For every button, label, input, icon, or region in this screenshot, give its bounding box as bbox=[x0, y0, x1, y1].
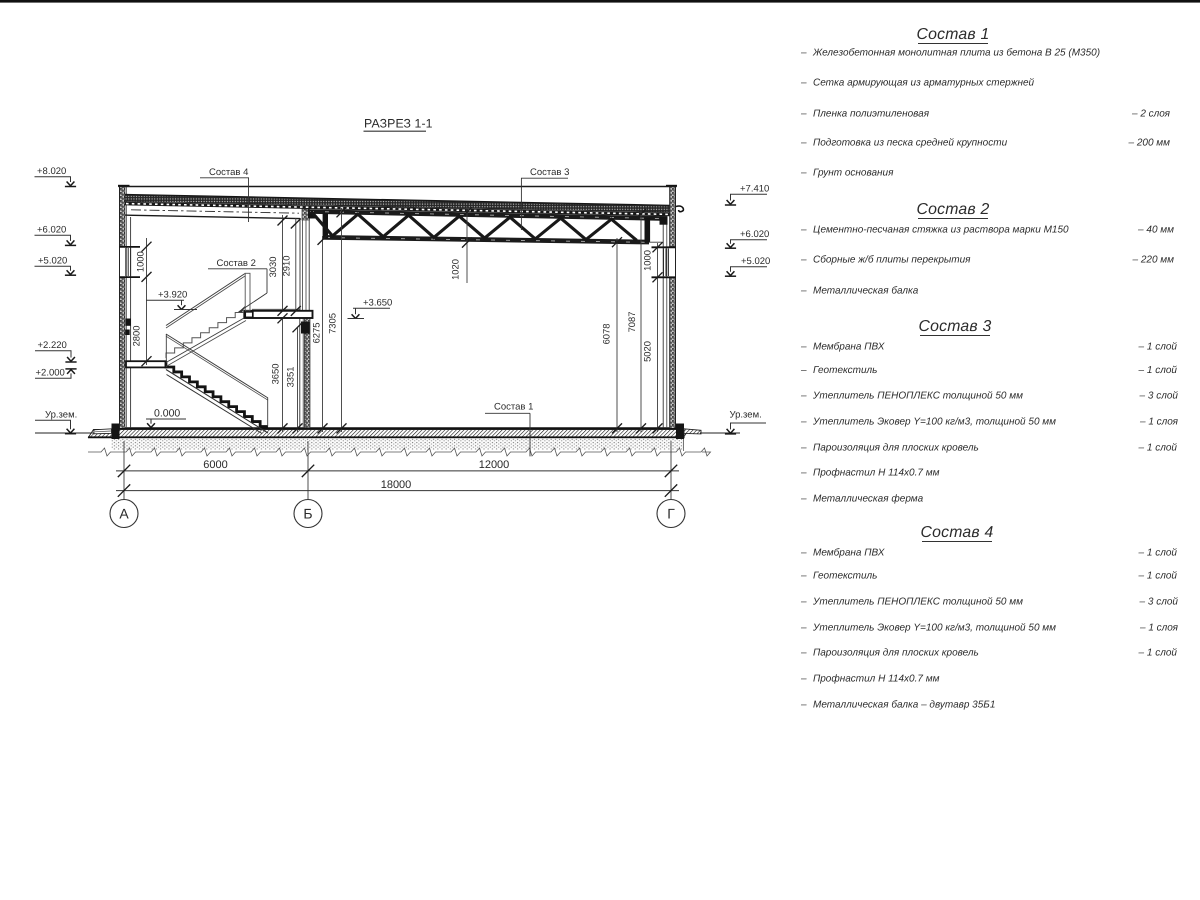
svg-text:Профнастил Н 114х0.7 мм: Профнастил Н 114х0.7 мм bbox=[813, 674, 940, 685]
svg-text:Ур.зем.: Ур.зем. bbox=[45, 410, 77, 421]
svg-text:+7.410: +7.410 bbox=[740, 184, 769, 195]
svg-text:1000: 1000 bbox=[642, 250, 653, 271]
svg-text:РАЗРЕЗ 1-1: РАЗРЕЗ 1-1 bbox=[364, 117, 433, 131]
svg-text:–: – bbox=[800, 391, 807, 402]
svg-text:Состав 3: Состав 3 bbox=[530, 167, 569, 178]
svg-text:1020: 1020 bbox=[450, 259, 461, 280]
svg-text:– 3 слой: – 3 слой bbox=[1139, 597, 1179, 608]
svg-text:–: – bbox=[800, 468, 807, 479]
svg-text:+6.020: +6.020 bbox=[37, 225, 66, 236]
svg-text:–: – bbox=[800, 648, 807, 659]
svg-text:2910: 2910 bbox=[280, 256, 291, 277]
svg-text:+5.020: +5.020 bbox=[38, 256, 67, 267]
svg-text:– 1 слоя: – 1 слоя bbox=[1139, 417, 1179, 428]
svg-text:+5.020: +5.020 bbox=[741, 256, 770, 267]
svg-text:+2.000: +2.000 bbox=[36, 368, 65, 379]
svg-text:Утеплитель ПЕНОПЛЕКС толщиной: Утеплитель ПЕНОПЛЕКС толщиной 50 мм bbox=[812, 597, 1023, 608]
svg-text:А: А bbox=[119, 505, 129, 521]
svg-text:3650: 3650 bbox=[270, 364, 281, 385]
svg-text:Утеплитель ПЕНОПЛЕКС толщиной: Утеплитель ПЕНОПЛЕКС толщиной 50 мм bbox=[812, 391, 1023, 402]
svg-text:Мембрана ПВХ: Мембрана ПВХ bbox=[813, 342, 885, 353]
svg-text:Профнастил Н 114х0.7 мм: Профнастил Н 114х0.7 мм bbox=[813, 468, 940, 479]
svg-text:–: – bbox=[800, 365, 807, 376]
svg-text:– 200 мм: – 200 мм bbox=[1127, 138, 1170, 149]
svg-text:Подготовка из песка средней кр: Подготовка из песка средней крупности bbox=[813, 138, 1008, 149]
svg-text:Сетка армирующая из арматурных: Сетка армирующая из арматурных стержней bbox=[813, 78, 1035, 89]
svg-text:12000: 12000 bbox=[479, 459, 510, 471]
svg-text:–: – bbox=[800, 548, 807, 559]
svg-text:Состав 4: Состав 4 bbox=[921, 524, 994, 541]
svg-text:0.000: 0.000 bbox=[154, 408, 180, 420]
svg-text:Состав 1: Состав 1 bbox=[917, 26, 990, 43]
svg-text:+3.650: +3.650 bbox=[363, 298, 392, 309]
svg-text:–: – bbox=[800, 255, 807, 266]
svg-text:Состав 4: Состав 4 bbox=[209, 167, 248, 178]
svg-text:7087: 7087 bbox=[626, 312, 637, 333]
svg-text:Геотекстиль: Геотекстиль bbox=[813, 571, 877, 582]
svg-text:–: – bbox=[800, 597, 807, 608]
svg-text:+3.920: +3.920 bbox=[158, 290, 187, 301]
svg-text:–: – bbox=[800, 417, 807, 428]
svg-text:– 220 мм: – 220 мм bbox=[1131, 255, 1174, 266]
svg-text:+8.020: +8.020 bbox=[37, 166, 66, 177]
svg-text:6000: 6000 bbox=[203, 459, 227, 471]
svg-text:Мембрана ПВХ: Мембрана ПВХ bbox=[813, 548, 885, 559]
svg-text:– 1 слой: – 1 слой bbox=[1138, 548, 1178, 559]
svg-text:5020: 5020 bbox=[642, 341, 653, 362]
svg-text:Утеплитель Эковер Y=100 кг/м3,: Утеплитель Эковер Y=100 кг/м3, толщиной … bbox=[812, 623, 1056, 634]
svg-text:Утеплитель Эковер Y=100 кг/м3,: Утеплитель Эковер Y=100 кг/м3, толщиной … bbox=[812, 417, 1056, 428]
svg-text:+6.020: +6.020 bbox=[740, 229, 769, 240]
svg-text:– 1 слоя: – 1 слоя bbox=[1139, 623, 1179, 634]
svg-text:Состав 1: Состав 1 bbox=[494, 402, 533, 413]
svg-text:– 1 слой: – 1 слой bbox=[1138, 571, 1178, 582]
svg-text:Состав 3: Состав 3 bbox=[919, 318, 992, 335]
svg-text:Пленка полиэтиленовая: Пленка полиэтиленовая bbox=[813, 109, 930, 120]
svg-text:18000: 18000 bbox=[381, 479, 412, 491]
svg-text:– 1 слой: – 1 слой bbox=[1138, 443, 1178, 454]
svg-text:–: – bbox=[800, 674, 807, 685]
svg-text:–: – bbox=[800, 342, 807, 353]
svg-text:–: – bbox=[800, 700, 807, 711]
svg-text:–: – bbox=[800, 494, 807, 505]
svg-text:Ур.зем.: Ур.зем. bbox=[730, 410, 762, 421]
svg-text:2800: 2800 bbox=[131, 326, 142, 347]
svg-text:7305: 7305 bbox=[327, 313, 338, 334]
svg-text:–: – bbox=[800, 623, 807, 634]
svg-text:Состав 2: Состав 2 bbox=[217, 258, 256, 269]
svg-text:Цементно-песчаная стяжка из ра: Цементно-песчаная стяжка из раствора мар… bbox=[813, 225, 1069, 236]
svg-text:–: – bbox=[800, 138, 807, 149]
svg-text:6078: 6078 bbox=[601, 324, 612, 345]
svg-text:– 1 слой: – 1 слой bbox=[1138, 342, 1178, 353]
svg-text:–: – bbox=[800, 109, 807, 120]
svg-text:Г: Г bbox=[667, 505, 675, 521]
svg-text:1000: 1000 bbox=[135, 251, 146, 272]
svg-text:3030: 3030 bbox=[267, 257, 278, 278]
svg-text:Металлическая балка – двутавр: Металлическая балка – двутавр 35Б1 bbox=[813, 700, 995, 711]
svg-text:Геотекстиль: Геотекстиль bbox=[813, 365, 877, 376]
svg-text:–: – bbox=[800, 571, 807, 582]
svg-text:–: – bbox=[800, 286, 807, 297]
svg-text:– 40 мм: – 40 мм bbox=[1137, 225, 1174, 236]
svg-text:– 1 слой: – 1 слой bbox=[1138, 365, 1178, 376]
svg-text:Пароизоляция для плоских крове: Пароизоляция для плоских кровель bbox=[813, 443, 979, 454]
svg-text:Сборные ж/б плиты перекрытия: Сборные ж/б плиты перекрытия bbox=[813, 255, 971, 266]
svg-text:Состав 2: Состав 2 bbox=[917, 201, 990, 218]
svg-text:– 1 слой: – 1 слой bbox=[1138, 648, 1178, 659]
svg-text:Металлическая ферма: Металлическая ферма bbox=[813, 494, 924, 505]
svg-text:Грунт основания: Грунт основания bbox=[813, 168, 894, 179]
svg-text:–: – bbox=[800, 168, 807, 179]
svg-text:–: – bbox=[800, 443, 807, 454]
svg-text:3351: 3351 bbox=[285, 367, 296, 388]
svg-text:+2.220: +2.220 bbox=[38, 340, 67, 351]
svg-text:6275: 6275 bbox=[311, 323, 322, 344]
svg-text:–: – bbox=[800, 48, 807, 59]
svg-text:Б: Б bbox=[303, 505, 312, 521]
svg-text:– 3 слой: – 3 слой bbox=[1139, 391, 1179, 402]
svg-text:– 2 слоя: – 2 слоя bbox=[1131, 109, 1171, 120]
svg-text:Металлическая балка: Металлическая балка bbox=[813, 286, 919, 297]
svg-text:Пароизоляция для плоских крове: Пароизоляция для плоских кровель bbox=[813, 648, 979, 659]
svg-text:–: – bbox=[800, 225, 807, 236]
svg-text:Железобетонная монолитная пли: Железобетонная монолитная плита из бетон… bbox=[812, 48, 1100, 59]
svg-text:–: – bbox=[800, 78, 807, 89]
